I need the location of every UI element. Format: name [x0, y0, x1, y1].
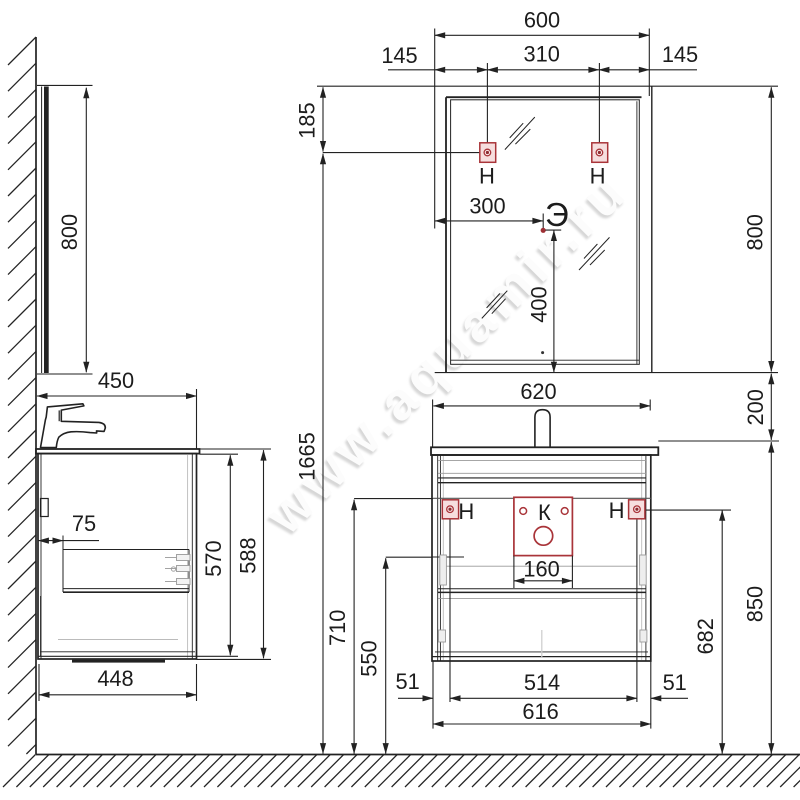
svg-text:514: 514	[524, 670, 560, 695]
svg-text:Н: Н	[458, 499, 474, 524]
svg-text:200: 200	[743, 389, 768, 425]
svg-text:Н: Н	[590, 163, 606, 188]
svg-text:185: 185	[294, 102, 319, 138]
svg-text:682: 682	[693, 618, 718, 654]
svg-text:850: 850	[743, 586, 768, 622]
svg-text:Э: Э	[545, 196, 569, 233]
svg-text:550: 550	[357, 640, 382, 676]
svg-text:800: 800	[57, 214, 82, 250]
svg-text:310: 310	[524, 41, 560, 66]
svg-text:300: 300	[469, 194, 505, 219]
svg-text:600: 600	[524, 7, 560, 32]
svg-text:51: 51	[663, 670, 687, 695]
svg-text:145: 145	[381, 43, 417, 68]
svg-text:145: 145	[662, 42, 698, 67]
svg-text:51: 51	[395, 669, 419, 694]
svg-text:450: 450	[98, 368, 134, 393]
svg-text:75: 75	[72, 511, 96, 536]
svg-text:Н: Н	[479, 163, 495, 188]
svg-text:616: 616	[522, 699, 558, 724]
svg-text:400: 400	[527, 286, 552, 322]
svg-text:1665: 1665	[294, 432, 319, 481]
svg-text:800: 800	[742, 214, 767, 250]
svg-text:710: 710	[325, 610, 350, 646]
svg-text:620: 620	[520, 379, 556, 404]
svg-text:570: 570	[201, 540, 226, 576]
svg-text:К: К	[538, 500, 551, 525]
svg-text:Н: Н	[609, 498, 625, 523]
svg-text:448: 448	[97, 666, 133, 691]
svg-text:160: 160	[523, 556, 559, 581]
svg-text:588: 588	[236, 537, 261, 573]
